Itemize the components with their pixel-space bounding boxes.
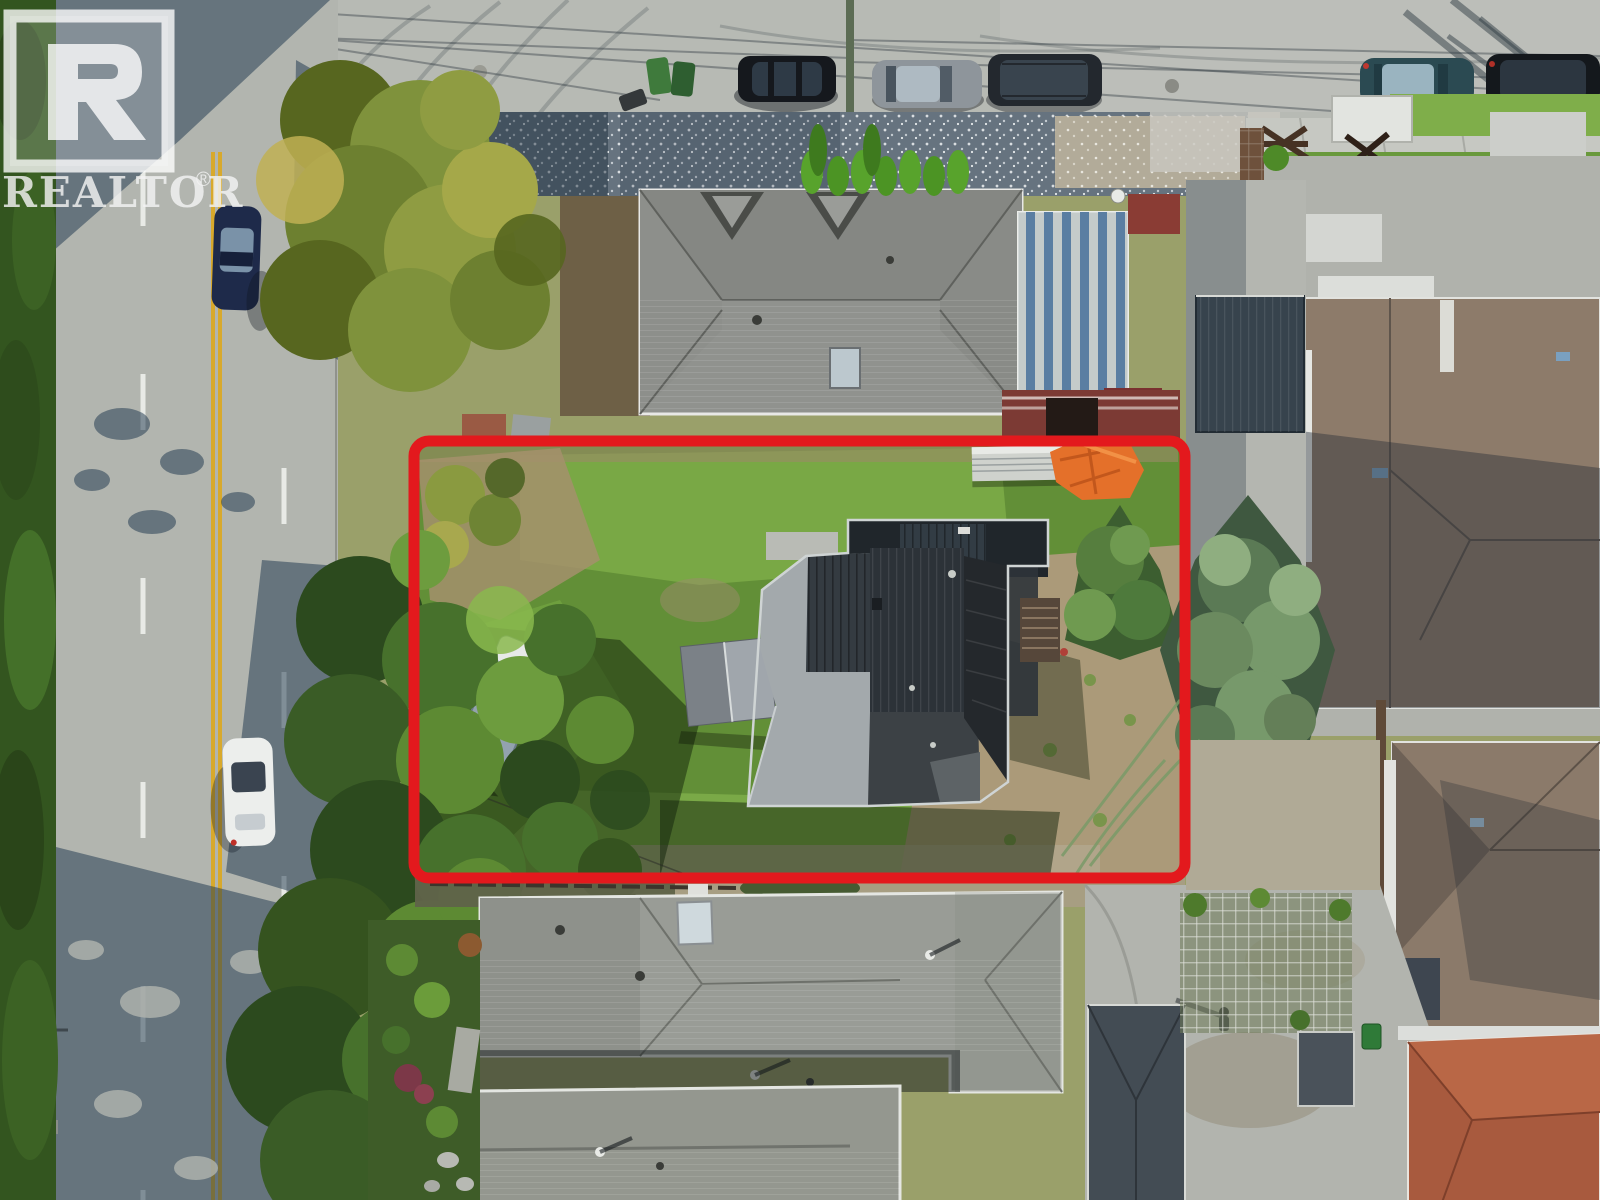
car-sedan-gray bbox=[872, 60, 984, 115]
vine-pergola bbox=[1180, 888, 1352, 1033]
south-garden bbox=[368, 920, 482, 1200]
car-suv-dark bbox=[986, 54, 1102, 116]
skylight bbox=[677, 901, 712, 944]
aerial-photo: REALTOR ® bbox=[0, 0, 1600, 1200]
terracotta-house bbox=[1398, 1026, 1600, 1200]
tan-house-top-right bbox=[1292, 298, 1600, 708]
metal-carport-roof bbox=[1018, 212, 1162, 418]
entry-roof bbox=[1298, 1032, 1354, 1106]
garage-dark-roof bbox=[1088, 1005, 1185, 1200]
maroon-carport bbox=[1002, 390, 1180, 442]
skylight bbox=[830, 348, 860, 388]
car-suv-black-1 bbox=[734, 56, 838, 112]
registered-symbol: ® bbox=[196, 169, 211, 191]
red-shed-roof bbox=[1128, 194, 1180, 234]
green-bin bbox=[1362, 1024, 1381, 1049]
satellite-dish bbox=[1111, 189, 1125, 203]
